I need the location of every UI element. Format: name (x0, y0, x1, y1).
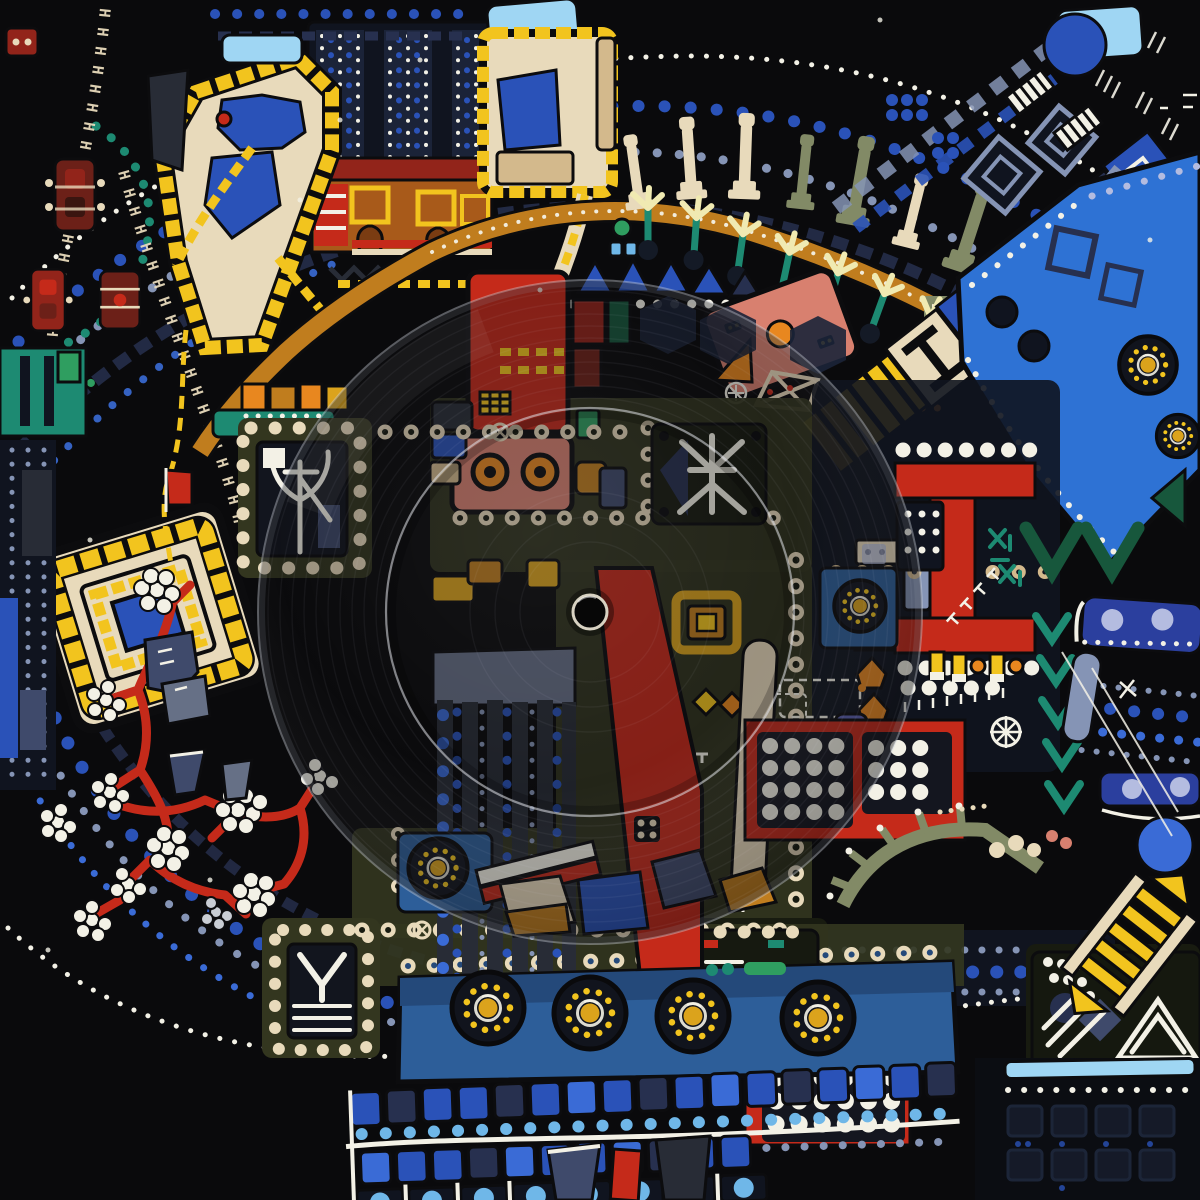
dark-grid-field (975, 1058, 1200, 1200)
abstract-painting: HHHHHHHHHHHHHHHHHHHH HHHHHHHHHHHHHHHHHHH… (0, 0, 1200, 1200)
spindle-hole (573, 595, 607, 629)
left-edge-strip (0, 440, 56, 790)
album-art-canvas: HHHHHHHHHHHHHHHHHHHH HHHHHHHHHHHHHHHHHHH… (0, 0, 1200, 1200)
cat-whiskers-panel (275, 930, 368, 1050)
charcoal-wedge (148, 70, 188, 170)
four-rosette-panel (398, 962, 958, 1082)
funnel-shape (222, 760, 252, 800)
gray-patch (162, 676, 210, 724)
